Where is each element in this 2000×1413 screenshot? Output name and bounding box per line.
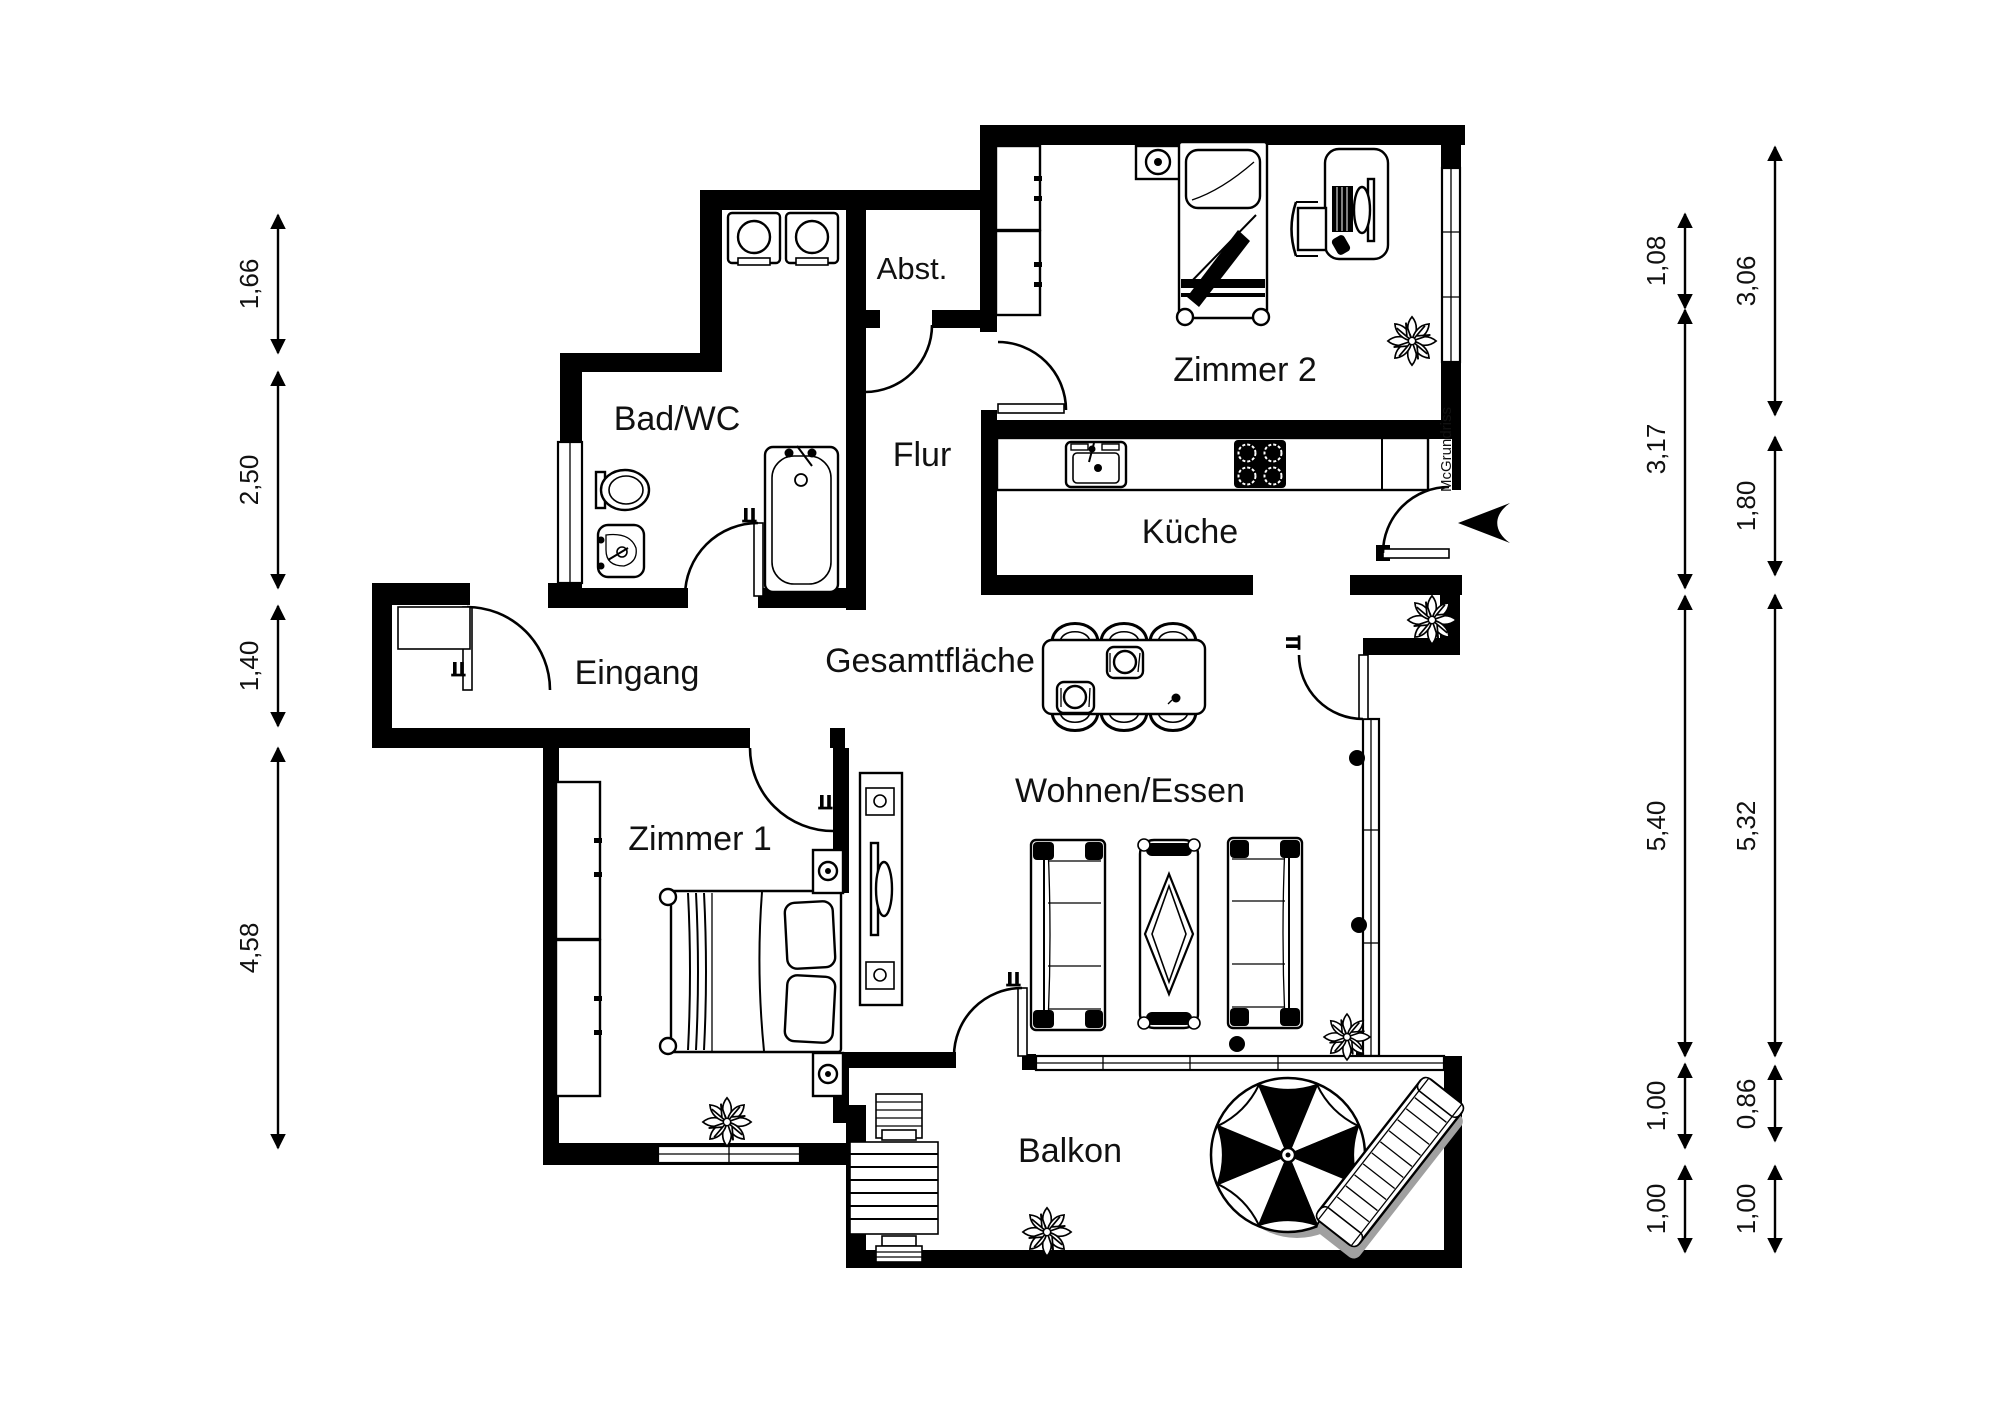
dim-label: 1,00 — [1641, 1081, 1671, 1132]
dim-label: 2,50 — [234, 455, 264, 506]
table-icon — [850, 1142, 938, 1234]
room-label-wohnen: Wohnen/Essen — [1015, 772, 1245, 810]
door-zimmer2 — [980, 317, 1066, 413]
toilet-icon — [596, 470, 649, 510]
dim-label: 0,86 — [1731, 1079, 1761, 1130]
dim-label: 1,66 — [234, 259, 264, 310]
floorplan-page: Abst. Zimmer 2 Bad/WC Flur Küche Eingang… — [0, 0, 2000, 1413]
speaker-box-icon — [1136, 146, 1180, 179]
window-zimmer2 — [1442, 168, 1460, 362]
marker-dot — [1349, 750, 1365, 766]
tv-sideboard — [860, 773, 902, 1005]
plant-icon — [1023, 1208, 1071, 1256]
room-label-flur: Flur — [893, 436, 952, 474]
stool-icon — [876, 1094, 922, 1140]
plant-icon — [1388, 317, 1436, 365]
coffee-table — [1138, 839, 1200, 1029]
sofa-left — [1031, 840, 1105, 1030]
plant-icon — [1324, 1014, 1370, 1060]
dim-label: 1,40 — [234, 641, 264, 692]
watermark-mcgrundriss: McGrundriss — [1438, 407, 1455, 492]
marker-dot — [1351, 917, 1367, 933]
sofa-right — [1228, 838, 1302, 1028]
plant-icon — [1408, 596, 1456, 644]
dim-label: 1,00 — [1641, 1184, 1671, 1235]
kitchen-sink-icon — [1066, 442, 1126, 487]
dim-label: 1,80 — [1731, 481, 1761, 532]
sink-icon — [598, 525, 645, 577]
nightstand-icon — [813, 1053, 843, 1096]
room-label-bad: Bad/WC — [614, 400, 741, 438]
keyboard-icon — [1332, 186, 1353, 232]
door-entry — [1383, 487, 1449, 558]
door-zimmer1 — [750, 748, 833, 831]
bed-double — [660, 889, 841, 1054]
dim-label: 1,00 — [1731, 1184, 1761, 1235]
room-label-gesamtflaeche: Gesamtfläche — [825, 642, 1035, 680]
floorplan-canvas: Abst. Zimmer 2 Bad/WC Flur Küche Eingang… — [0, 0, 2000, 1413]
bed-single — [1177, 142, 1269, 325]
door-bad — [685, 508, 763, 596]
dim-label: 3,06 — [1731, 256, 1761, 307]
door-eingang — [398, 607, 550, 690]
dim-label: 4,58 — [234, 923, 264, 974]
stool-icon — [876, 1236, 922, 1262]
window-wohnen — [1363, 719, 1379, 1056]
room-label-zimmer1: Zimmer 1 — [628, 820, 772, 858]
door-wohnen — [1286, 635, 1368, 719]
marker-dot — [1229, 1036, 1245, 1052]
door-balkon — [954, 972, 1027, 1056]
wardrobe-zimmer1 — [556, 782, 602, 1096]
dining-set — [1043, 624, 1205, 731]
dimension-chain-right-inner: 1,08 3,17 5,40 1,00 1,00 — [1641, 214, 1685, 1252]
nightstand-icon — [813, 850, 843, 893]
room-label-abst: Abst. — [877, 251, 948, 286]
dimension-chain-right-outer: 3,06 1,80 5,32 0,86 1,00 — [1731, 147, 1775, 1252]
window-balcony-band — [1036, 1056, 1444, 1070]
window-bad — [558, 442, 582, 583]
washer-icon — [786, 213, 838, 265]
dim-label: 5,40 — [1641, 801, 1671, 852]
room-label-zimmer2: Zimmer 2 — [1173, 351, 1317, 389]
window-zimmer1 — [658, 1146, 800, 1163]
wardrobe-zimmer2 — [996, 146, 1042, 315]
desk — [1325, 149, 1388, 259]
plant-icon — [703, 1098, 751, 1146]
cooktop-icon — [1234, 440, 1286, 488]
place-setting-icon — [1107, 647, 1143, 678]
washer-icon — [728, 213, 780, 265]
bathtub-icon — [765, 446, 838, 592]
dimension-chain-left: 1,66 2,50 1,40 4,58 — [234, 215, 278, 1148]
place-setting-icon — [1057, 682, 1094, 713]
entrance-arrow-icon — [1458, 503, 1510, 543]
dim-label: 5,32 — [1731, 801, 1761, 852]
kitchen-counter — [997, 438, 1428, 490]
desk-chair — [1292, 202, 1327, 256]
room-label-kueche: Küche — [1142, 513, 1238, 551]
dim-label: 3,17 — [1641, 424, 1671, 475]
room-label-balkon: Balkon — [1018, 1132, 1122, 1170]
dim-label: 1,08 — [1641, 236, 1671, 287]
room-label-eingang: Eingang — [575, 654, 700, 692]
